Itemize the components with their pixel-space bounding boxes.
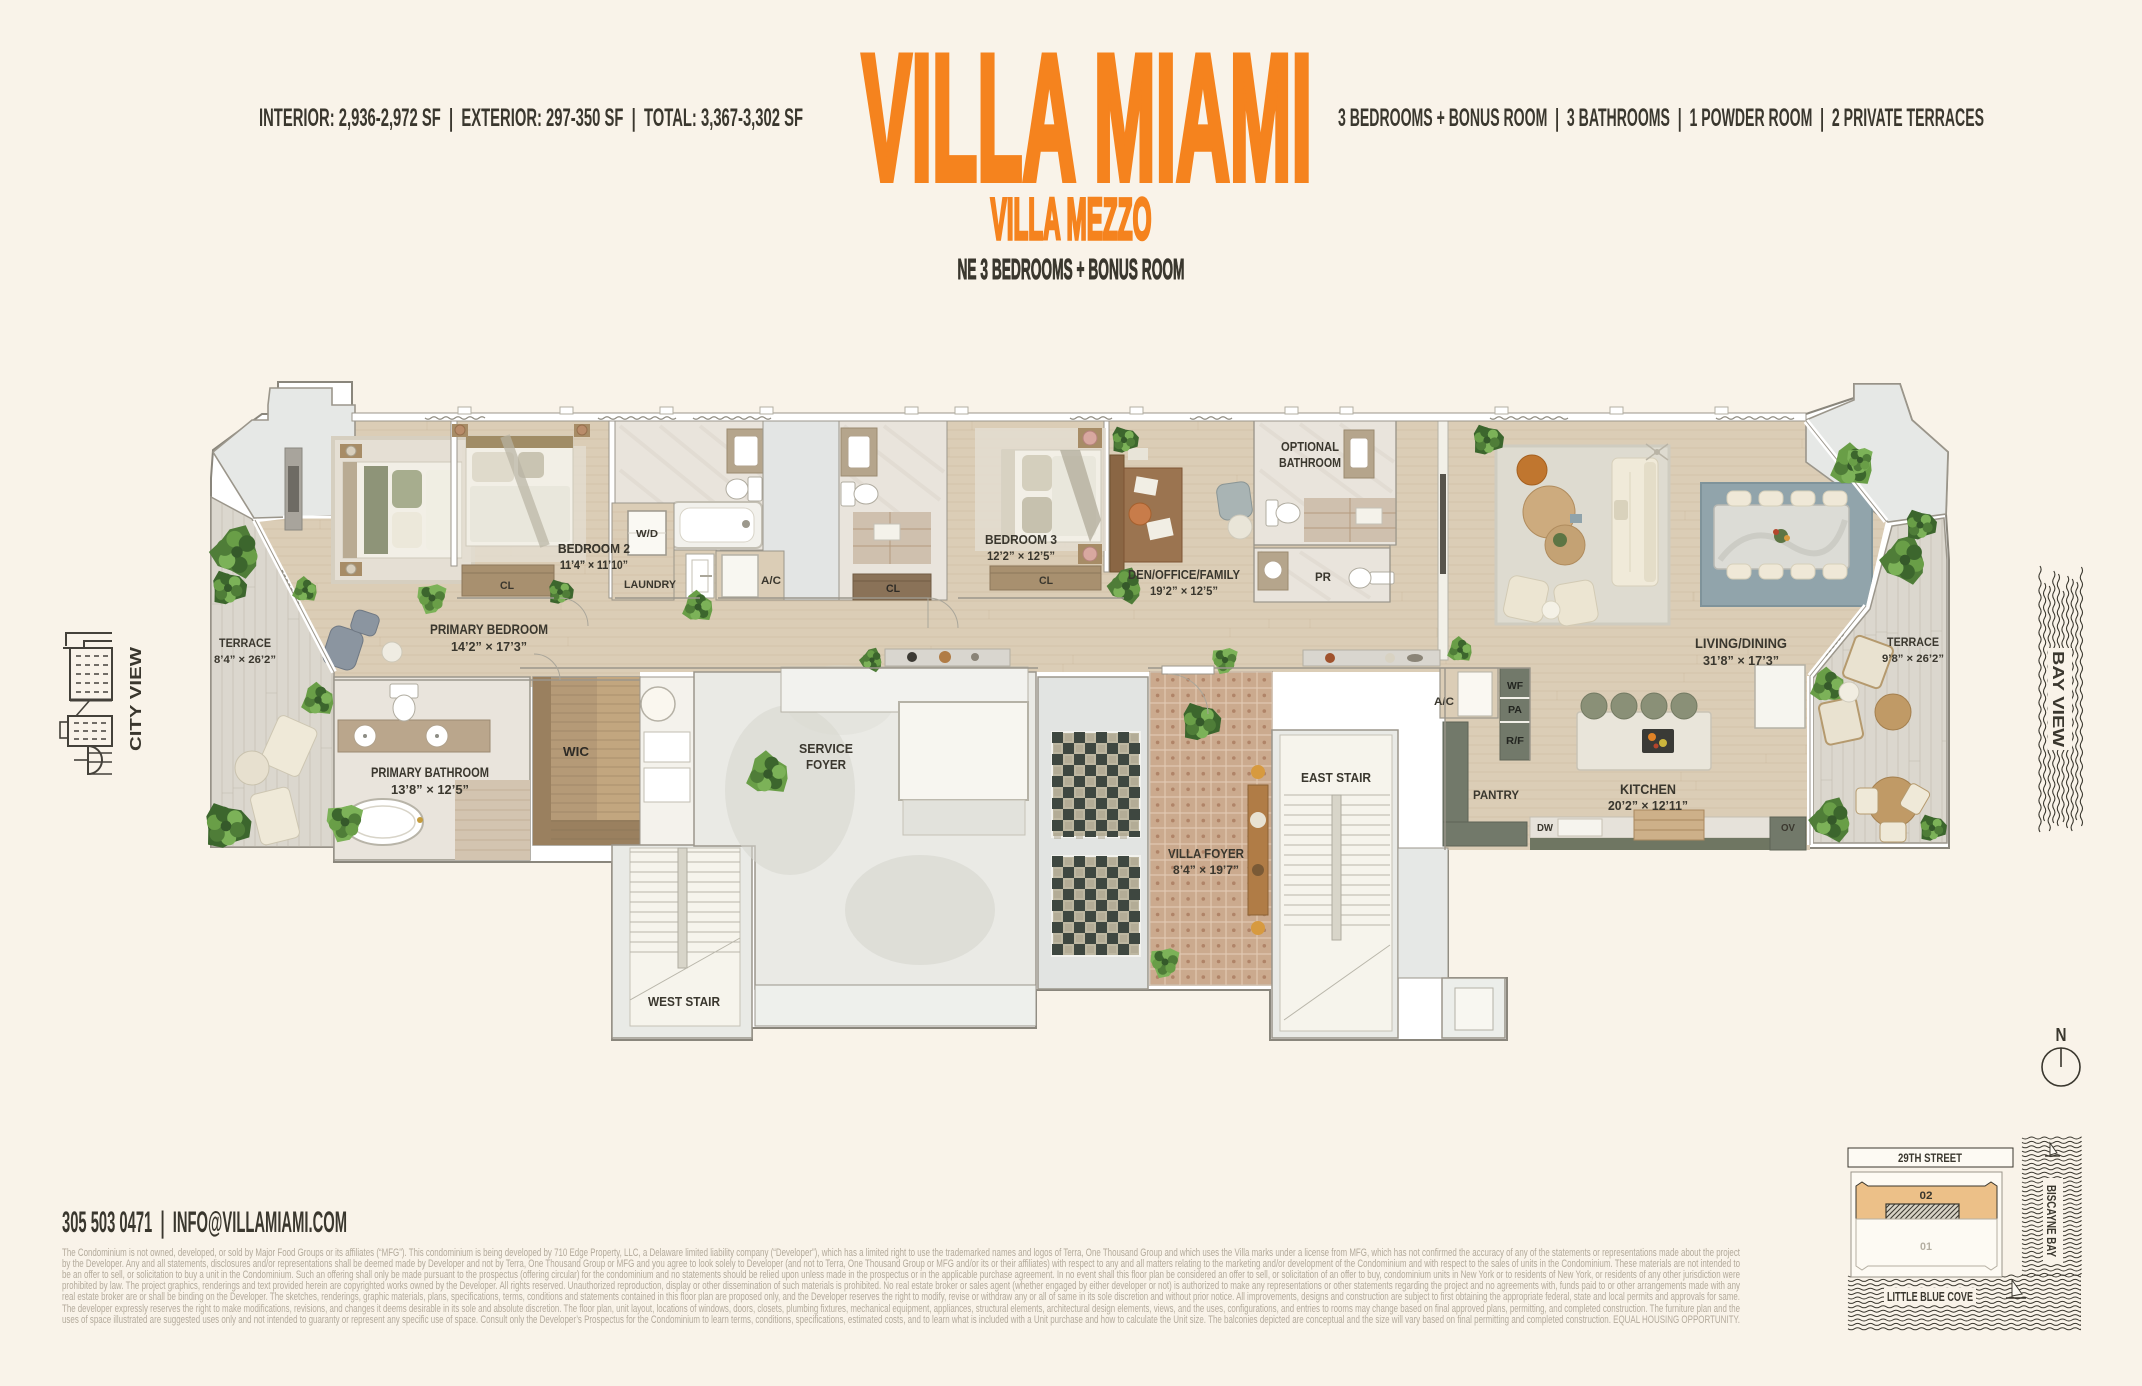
svg-text:31’8” × 17’3”: 31’8” × 17’3” [1703, 653, 1779, 668]
svg-text:FOYER: FOYER [806, 757, 847, 772]
svg-text:real estate broker are or shal: real estate broker are or shall be bindi… [62, 1291, 1740, 1303]
svg-text:PR: PR [1315, 570, 1331, 584]
svg-text:VILLA FOYER: VILLA FOYER [1168, 846, 1245, 861]
svg-text:BAY VIEW: BAY VIEW [2049, 651, 2066, 748]
svg-text:TERRACE: TERRACE [1887, 635, 1939, 649]
svg-text:WIC: WIC [563, 744, 590, 759]
svg-text:PANTRY: PANTRY [1473, 788, 1519, 802]
svg-text:NE 3 BEDROOMS + BONUS ROOM: NE 3 BEDROOMS + BONUS ROOM [958, 254, 1185, 286]
svg-text:CL: CL [1039, 575, 1053, 587]
svg-text:W/D: W/D [636, 529, 658, 540]
svg-text:SERVICE: SERVICE [799, 741, 853, 756]
svg-text:LIVING/DINING: LIVING/DINING [1695, 635, 1787, 651]
svg-text:DW: DW [1537, 823, 1554, 834]
svg-text:WEST STAIR: WEST STAIR [648, 994, 721, 1009]
svg-text:CITY VIEW: CITY VIEW [128, 646, 145, 751]
svg-text:OV: OV [1781, 823, 1795, 834]
svg-text:PRIMARY BEDROOM: PRIMARY BEDROOM [430, 621, 548, 637]
svg-text:R/F: R/F [1506, 736, 1524, 747]
svg-text:3 BEDROOMS + BONUS ROOM | 3: 3 BEDROOMS + BONUS ROOM | 3 BATHROOMS | … [1338, 104, 1984, 132]
svg-text:9’8” × 26’2”: 9’8” × 26’2” [1882, 653, 1944, 665]
svg-text:A/C: A/C [761, 575, 781, 587]
svg-text:TERRACE: TERRACE [219, 636, 271, 650]
svg-text:BISCAYNE BAY: BISCAYNE BAY [2044, 1185, 2059, 1257]
svg-text:KITCHEN: KITCHEN [1620, 781, 1676, 797]
svg-text:LITTLE BLUE COVE: LITTLE BLUE COVE [1887, 1289, 1973, 1304]
svg-text:12’2” × 12’5”: 12’2” × 12’5” [987, 549, 1055, 563]
svg-text:CL: CL [500, 580, 514, 592]
svg-text:20’2” × 12’11”: 20’2” × 12’11” [1608, 798, 1688, 813]
svg-text:13’8” × 12’5”: 13’8” × 12’5” [391, 782, 469, 797]
svg-text:uses of space illustrated are: uses of space illustrated are suggested … [62, 1314, 1740, 1326]
svg-text:02: 02 [1920, 1190, 1933, 1202]
svg-text:19’2” × 12’5”: 19’2” × 12’5” [1150, 584, 1218, 598]
svg-text:14’2” × 17’3”: 14’2” × 17’3” [451, 639, 527, 654]
svg-text:LAUNDRY: LAUNDRY [624, 579, 677, 591]
svg-text:BEDROOM 3: BEDROOM 3 [985, 532, 1057, 547]
svg-text:N: N [2056, 1025, 2067, 1045]
svg-text:01: 01 [1920, 1241, 1932, 1253]
svg-text:DEN/OFFICE/FAMILY: DEN/OFFICE/FAMILY [1128, 567, 1240, 582]
svg-text:BATHROOM: BATHROOM [1279, 455, 1341, 470]
svg-text:WF: WF [1507, 681, 1523, 692]
svg-text:PRIMARY BATHROOM: PRIMARY BATHROOM [371, 764, 489, 780]
svg-text:CL: CL [886, 583, 900, 595]
svg-text:OPTIONAL: OPTIONAL [1281, 439, 1339, 454]
svg-text:BEDROOM 2: BEDROOM 2 [558, 541, 630, 556]
svg-text:29TH STREET: 29TH STREET [1898, 1151, 1963, 1165]
svg-text:8’4” × 19’7”: 8’4” × 19’7” [1173, 863, 1239, 877]
svg-text:8’4” × 26’2”: 8’4” × 26’2” [214, 654, 276, 666]
svg-text:VILLA MEZZO: VILLA MEZZO [991, 187, 1152, 252]
svg-text:11’4” × 11’10”: 11’4” × 11’10” [560, 558, 628, 572]
svg-text:305 503 0471 | INFO@VILLAMIA: 305 503 0471 | INFO@VILLAMIAMI.COM [62, 1206, 347, 1239]
svg-text:EAST STAIR: EAST STAIR [1301, 770, 1372, 785]
svg-text:INTERIOR: 2,936-2,972 SF | E: INTERIOR: 2,936-2,972 SF | EXTERIOR: 297… [259, 104, 803, 132]
svg-text:A/C: A/C [1434, 696, 1454, 708]
svg-text:PA: PA [1508, 705, 1522, 716]
